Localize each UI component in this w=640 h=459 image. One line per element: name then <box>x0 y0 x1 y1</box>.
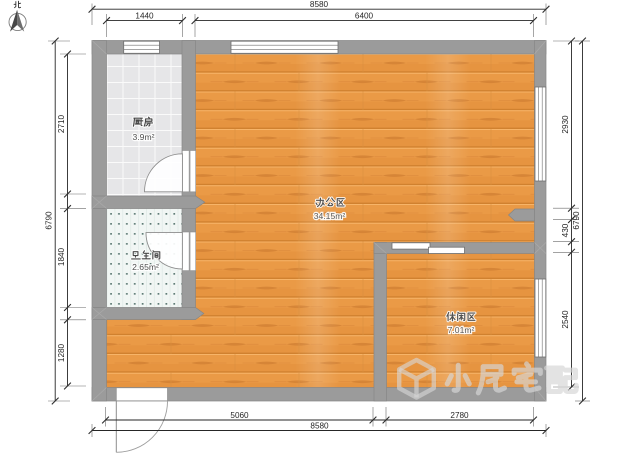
svg-text:7.01m²: 7.01m² <box>448 325 475 335</box>
svg-text:2.65m²: 2.65m² <box>132 262 159 272</box>
svg-text:8580: 8580 <box>310 421 329 430</box>
svg-text:1280: 1280 <box>57 343 66 362</box>
svg-text:2930: 2930 <box>561 115 570 134</box>
svg-text:2710: 2710 <box>57 114 66 133</box>
svg-text:430: 430 <box>561 223 570 237</box>
svg-text:1840: 1840 <box>57 247 66 266</box>
svg-text:8580: 8580 <box>310 0 329 9</box>
svg-text:3.9m²: 3.9m² <box>133 132 155 142</box>
svg-text:6790: 6790 <box>572 211 581 230</box>
svg-text:1440: 1440 <box>135 11 154 20</box>
svg-text:2540: 2540 <box>561 310 570 329</box>
svg-text:6400: 6400 <box>355 11 374 20</box>
svg-text:6790: 6790 <box>45 211 54 230</box>
svg-text:2780: 2780 <box>450 411 469 420</box>
svg-text:34.15m²: 34.15m² <box>314 211 346 221</box>
svg-text:5060: 5060 <box>230 411 249 420</box>
